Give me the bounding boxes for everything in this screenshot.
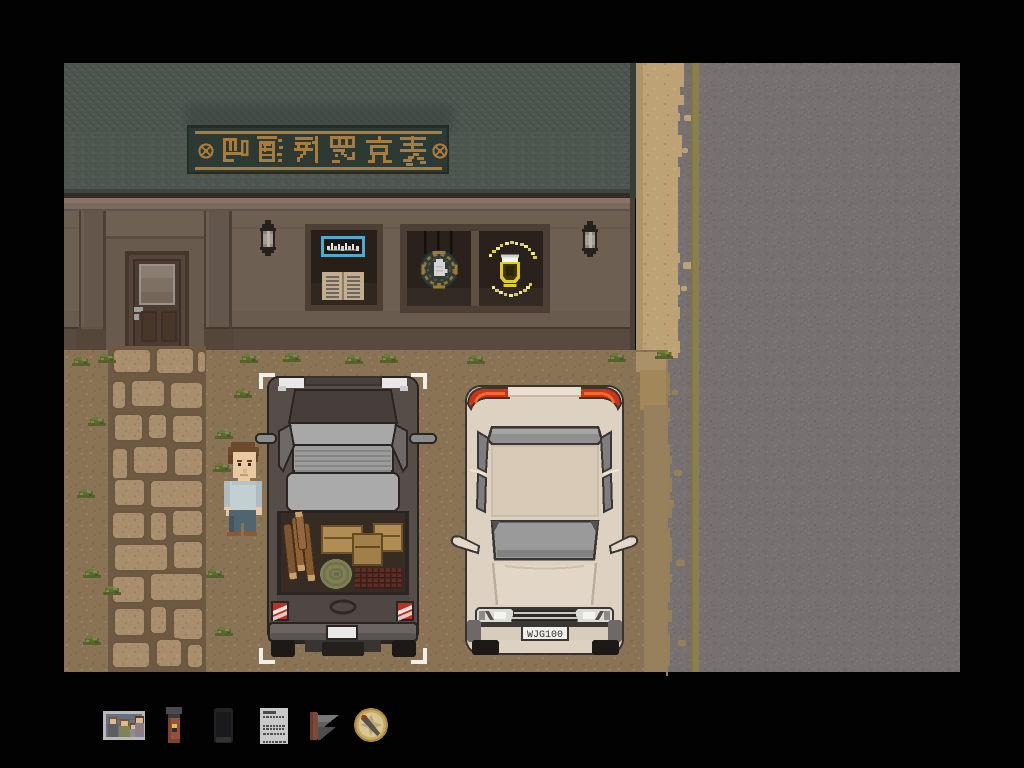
svg-text:WJG100: WJG100 <box>527 630 563 641</box>
